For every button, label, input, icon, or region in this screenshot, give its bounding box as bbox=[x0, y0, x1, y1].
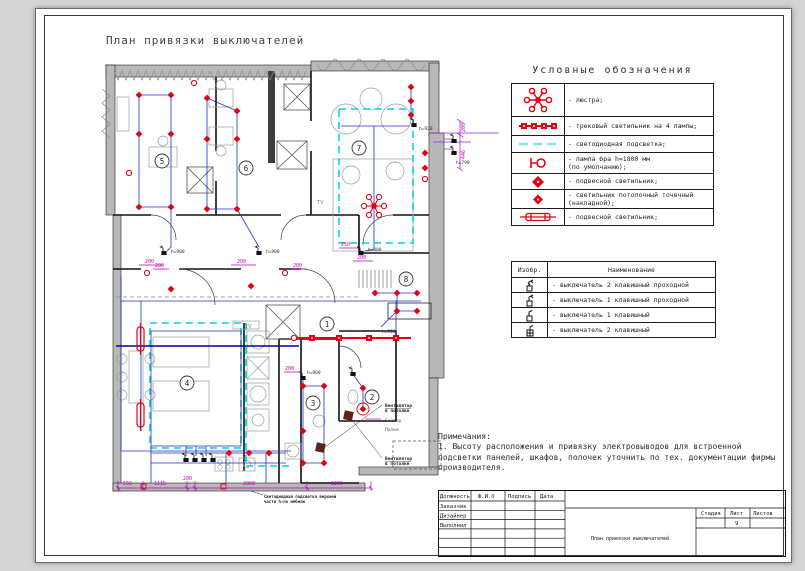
legend-table: - люстра; - трековый светильник на 4 лам… bbox=[511, 83, 714, 226]
switch-2key-pass-icon bbox=[512, 278, 548, 292]
dim-200: 200 bbox=[155, 263, 164, 269]
h900-label: h=900 bbox=[171, 249, 185, 255]
dim-200: 200 bbox=[293, 263, 302, 269]
h790-label: h=790 bbox=[456, 160, 470, 166]
row-executor: Выполнил bbox=[440, 523, 467, 529]
h800-label: h=800 bbox=[368, 247, 382, 253]
ceiling-fans bbox=[315, 410, 354, 453]
stage-label: Стадия bbox=[701, 511, 721, 517]
legend-label: - подвесной светильник; bbox=[565, 209, 713, 225]
legend-label: - люстра; bbox=[565, 84, 713, 116]
led-note: части h-по мебели bbox=[264, 499, 306, 504]
legend-row: - подвесной светильник; bbox=[512, 174, 713, 190]
room-number-5: 5 bbox=[160, 157, 165, 166]
dim-200: 200 bbox=[285, 366, 294, 372]
switch-table: Изобр. Наименование - выключатель 2 клав… bbox=[511, 261, 716, 338]
tv-label: TV bbox=[317, 200, 324, 206]
dim-250: 250 bbox=[341, 242, 350, 248]
switch-name: - выключатель 2 клавишный проходной bbox=[548, 278, 715, 292]
sheets-label: Листов bbox=[753, 511, 773, 517]
legend-row: - люстра; bbox=[512, 84, 713, 117]
dim-550: 550 bbox=[123, 481, 132, 487]
dim-446: 446 bbox=[461, 150, 467, 159]
drawing-sheet: План привязки выключателей bbox=[35, 8, 792, 563]
table-row: - выключатель 2 клавишный проходной bbox=[512, 278, 715, 293]
legend-row: - лампа бра h=1800 мм (по умолчанию); bbox=[512, 153, 713, 174]
col-sign: Подпись bbox=[508, 494, 531, 500]
switches bbox=[160, 118, 457, 462]
dim-1115: 1115 bbox=[154, 481, 166, 487]
title-block: Должность Ф.И.О Подпись Дата Заказчик Ди… bbox=[438, 490, 786, 557]
legend-row: - светодиодная подсветка; bbox=[512, 136, 713, 153]
dim-200: 200 bbox=[357, 255, 366, 261]
sheet-number: 9 bbox=[735, 521, 738, 527]
fan-label: в потолке bbox=[385, 409, 410, 414]
h920-label: h=920 bbox=[419, 126, 433, 132]
legend-title: Условные обозначения bbox=[511, 65, 714, 76]
table-row: - выключатель 2 клавишный bbox=[512, 323, 715, 337]
room-number-6: 6 bbox=[244, 164, 249, 173]
track-light-icon bbox=[512, 117, 565, 135]
legend-row: - подвесной светильник; bbox=[512, 209, 713, 225]
legend-label: - светодиодная подсветка; bbox=[565, 136, 713, 152]
room-number-2: 2 bbox=[370, 393, 375, 402]
switch-name: - выключатель 2 клавишный bbox=[548, 323, 715, 337]
legend-label: - светильник потолочный точечный (наклад… bbox=[565, 190, 713, 208]
notes: Примечания: 1. Высоту расположения и при… bbox=[438, 432, 780, 474]
switch-2key-icon bbox=[512, 323, 548, 337]
switch-table-header: Изобр. Наименование bbox=[512, 262, 715, 278]
table-row: - выключатель 1 клавишный bbox=[512, 308, 715, 323]
notes-heading: Примечания: bbox=[438, 432, 780, 442]
legend-label: - подвесной светильник; bbox=[565, 174, 713, 189]
room-number-7: 7 bbox=[357, 144, 362, 153]
col-name: Наименование bbox=[548, 262, 715, 277]
dim-200: 200 bbox=[145, 259, 154, 265]
boiler-label: Бойлер bbox=[385, 418, 402, 424]
spot-light-icon bbox=[512, 190, 565, 208]
wall-sconces bbox=[126, 80, 427, 275]
legend-label: - трековый светильник на 4 лампы; bbox=[565, 117, 713, 135]
row-designer: Дизайнер bbox=[440, 514, 467, 520]
switch-name: - выключатель 1 клавишный проходной bbox=[548, 293, 715, 307]
sconce-icon bbox=[512, 153, 565, 173]
room-number-1: 1 bbox=[325, 320, 330, 329]
table-row: - выключатель 1 клавишный проходной bbox=[512, 293, 715, 308]
shelves-label: Полки bbox=[385, 427, 399, 433]
h900-label: h=900 bbox=[307, 370, 321, 376]
dim-200-v: 200 bbox=[461, 123, 467, 132]
room-number-8: 8 bbox=[404, 275, 409, 284]
room-number-3: 3 bbox=[311, 399, 316, 408]
legend-row: - светильник потолочный точечный (наклад… bbox=[512, 190, 713, 209]
door-arcs bbox=[151, 215, 393, 368]
linear-pendant-icon bbox=[512, 209, 565, 225]
doc-title: План привязки выключателей bbox=[591, 536, 669, 542]
legend-label: - лампа бра h=1800 мм (по умолчанию); bbox=[565, 153, 713, 173]
dim-1200: 1200 bbox=[331, 481, 343, 487]
dim-200: 200 bbox=[237, 259, 246, 265]
room-number-4: 4 bbox=[185, 379, 190, 388]
col-position: Должность bbox=[440, 494, 470, 500]
row-customer: Заказчик bbox=[440, 504, 467, 510]
col-date: Дата bbox=[540, 494, 553, 500]
chandelier-icon bbox=[512, 84, 565, 116]
annotations: Вентилятор в потолке Вентилятор в потолк… bbox=[245, 200, 412, 504]
switch-name: - выключатель 1 клавишный bbox=[548, 308, 715, 322]
fan-label: в потолке bbox=[385, 462, 410, 467]
track-light-icon bbox=[291, 335, 411, 341]
dim-2000: 2000 bbox=[243, 481, 255, 487]
legend-row: - трековый светильник на 4 лампы; bbox=[512, 117, 713, 136]
wardrobe-wall bbox=[268, 71, 275, 163]
col-name: Ф.И.О bbox=[478, 494, 495, 500]
notes-text: 1. Высоту расположения и привязку электр… bbox=[438, 442, 780, 473]
legend: Условные обозначения - люстра; bbox=[511, 65, 714, 226]
h900-label: h=900 bbox=[266, 249, 280, 255]
switch-1key-pass-icon bbox=[512, 293, 548, 307]
tv-label: TV bbox=[245, 324, 252, 330]
led-strip-icon bbox=[512, 136, 565, 152]
h900-label: h=900 bbox=[382, 329, 396, 335]
pendant-light-icon bbox=[512, 174, 565, 189]
desktop: { "drawing": { "title": "План привязки в… bbox=[0, 0, 805, 571]
dim-200-b: 200 bbox=[183, 476, 192, 482]
led-strips bbox=[150, 109, 413, 466]
switch-1key-icon bbox=[512, 308, 548, 322]
page-title: План привязки выключателей bbox=[106, 34, 304, 47]
sheet-label: Лист bbox=[730, 511, 743, 517]
col-symbol: Изобр. bbox=[512, 262, 548, 277]
